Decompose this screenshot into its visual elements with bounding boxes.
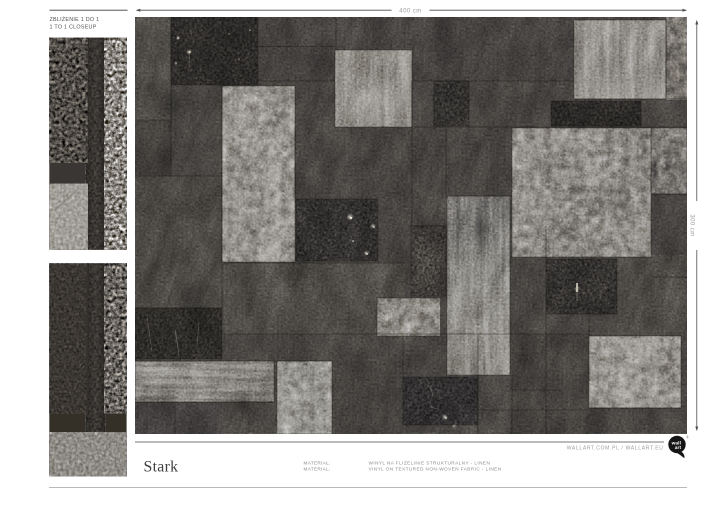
svg-text:ZBLIŻENIE 1 DO 1: ZBLIŻENIE 1 DO 1: [50, 16, 100, 23]
svg-text:Stark: Stark: [144, 458, 179, 475]
svg-text:400 cm: 400 cm: [399, 9, 421, 15]
svg-text:art: art: [675, 445, 682, 451]
svg-text:VINYL ON TEXTURED NON-WOVEN FA: VINYL ON TEXTURED NON-WOVEN FABRIC - LIN…: [369, 467, 502, 472]
svg-text:300 cm: 300 cm: [689, 214, 695, 236]
svg-text:WALLART.COM.PL / WALLART.EU: WALLART.COM.PL / WALLART.EU: [567, 446, 664, 452]
svg-text:1 TO 1 CLOSEUP: 1 TO 1 CLOSEUP: [50, 24, 97, 30]
svg-text:WINYL NA FLIZELINIE STRUKTURAL: WINYL NA FLIZELINIE STRUKTURALNY - LINEN: [369, 461, 491, 466]
svg-text:MATERIAŁ:: MATERIAŁ:: [304, 461, 331, 466]
svg-text:MATERIAL:: MATERIAL:: [304, 467, 331, 472]
